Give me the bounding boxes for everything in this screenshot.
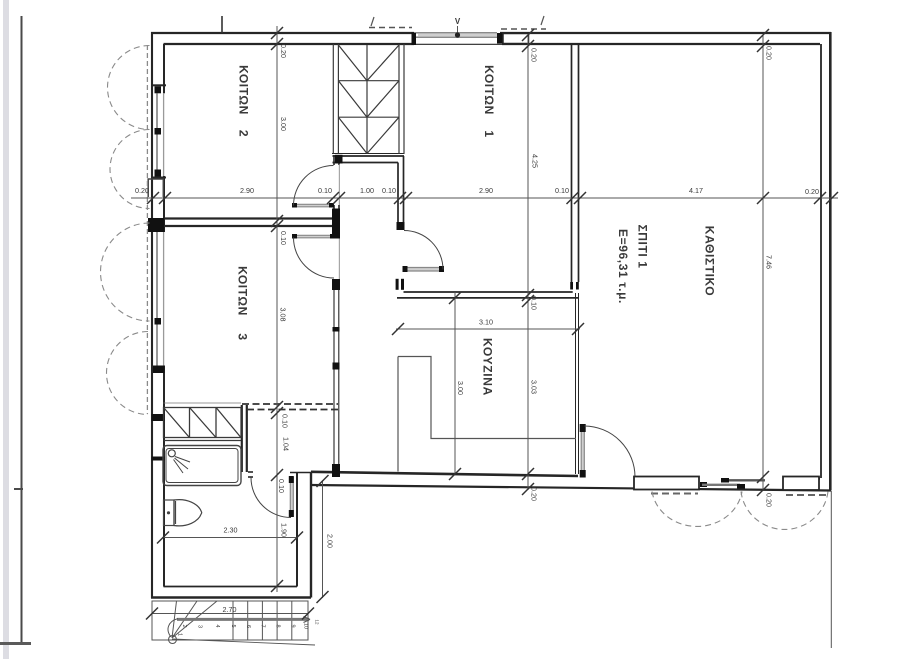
svg-text:3: 3 <box>236 333 250 340</box>
svg-text:ΚΑΘΙΣΤΙΚΟ: ΚΑΘΙΣΤΙΚΟ <box>703 226 717 296</box>
svg-text:4: 4 <box>214 624 220 627</box>
svg-text:2: 2 <box>181 624 187 627</box>
svg-text:0.20: 0.20 <box>530 487 539 501</box>
svg-text:ΚΟΙΤΩΝ: ΚΟΙΤΩΝ <box>236 266 250 316</box>
svg-text:4.25: 4.25 <box>531 154 540 168</box>
svg-text:2.30: 2.30 <box>224 526 238 535</box>
svg-text:3.00: 3.00 <box>456 381 465 395</box>
svg-text:6: 6 <box>245 625 251 628</box>
svg-text:1.04: 1.04 <box>282 437 291 451</box>
svg-text:3.03: 3.03 <box>530 380 539 394</box>
svg-text:0.10: 0.10 <box>277 479 286 493</box>
svg-text:5: 5 <box>230 624 236 627</box>
svg-text:3.00: 3.00 <box>279 117 288 131</box>
svg-text:2.70: 2.70 <box>223 605 237 614</box>
svg-text:2.90: 2.90 <box>479 186 493 195</box>
svg-text:0.10: 0.10 <box>279 231 288 245</box>
svg-text:7: 7 <box>260 624 266 627</box>
svg-text:0.10: 0.10 <box>382 186 396 195</box>
svg-text:0.20: 0.20 <box>530 48 539 62</box>
svg-text:3.08: 3.08 <box>279 308 288 322</box>
svg-text:0.20: 0.20 <box>765 46 774 60</box>
svg-text:3: 3 <box>197 625 203 628</box>
svg-text:0.10: 0.10 <box>318 186 332 195</box>
svg-text:V: V <box>455 17 461 26</box>
svg-text:1.90: 1.90 <box>280 523 289 537</box>
svg-text:1: 1 <box>482 130 496 137</box>
svg-text:0.10: 0.10 <box>555 186 569 195</box>
svg-text:1.00: 1.00 <box>360 186 374 195</box>
svg-text:4.17: 4.17 <box>689 186 703 195</box>
svg-text:7.46: 7.46 <box>765 255 774 269</box>
svg-text:0.20: 0.20 <box>805 187 819 196</box>
svg-text:2.00: 2.00 <box>326 534 335 548</box>
svg-text:2: 2 <box>237 130 251 137</box>
svg-text:2.90: 2.90 <box>240 186 254 195</box>
svg-text:9: 9 <box>290 624 296 627</box>
svg-text:12: 12 <box>315 619 320 625</box>
svg-text:0.20: 0.20 <box>765 493 774 507</box>
svg-text:ΚΟΙΤΩΝ: ΚΟΙΤΩΝ <box>482 65 496 115</box>
svg-text:10: 10 <box>303 623 309 629</box>
svg-text:0.10: 0.10 <box>530 296 539 310</box>
svg-text:1: 1 <box>177 633 183 636</box>
svg-text:0.20: 0.20 <box>135 186 149 195</box>
svg-text:0.10: 0.10 <box>281 414 290 428</box>
svg-text:ΚΟΥΖΙΝΑ: ΚΟΥΖΙΝΑ <box>481 338 495 396</box>
svg-text:ΣΠΙΤΙ 1: ΣΠΙΤΙ 1 <box>636 224 650 268</box>
svg-text:ΚΟΙΤΩΝ: ΚΟΙΤΩΝ <box>237 65 251 115</box>
svg-text:0.20: 0.20 <box>279 44 288 58</box>
svg-text:Ε=96,31 τ.μ.: Ε=96,31 τ.μ. <box>616 229 630 304</box>
svg-text:3.10: 3.10 <box>479 318 493 327</box>
svg-text:8: 8 <box>275 624 281 627</box>
